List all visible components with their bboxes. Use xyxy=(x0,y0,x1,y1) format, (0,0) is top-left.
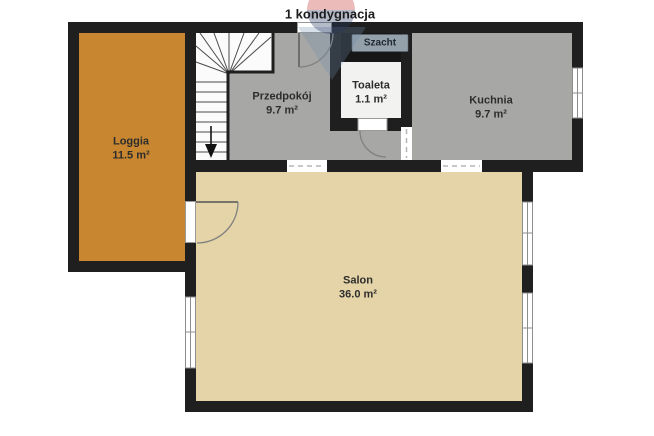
room-name: Salon xyxy=(339,274,377,288)
wall-segment xyxy=(68,22,196,33)
room-area: 9.7 m² xyxy=(252,104,311,118)
window-kuchnia xyxy=(573,68,583,118)
window-salon-right-lower xyxy=(523,293,533,363)
wall-segment xyxy=(330,118,358,131)
room-label-salon: Salon 36.0 m² xyxy=(339,274,377,303)
wall-segment xyxy=(572,22,583,68)
room-name: Kuchnia xyxy=(469,94,512,108)
wall-segment xyxy=(185,22,196,201)
wall-segment xyxy=(522,265,533,293)
wall-segment xyxy=(68,22,79,272)
room-label-loggia: Loggia 11.5 m² xyxy=(112,135,149,164)
floor-title: 1 kondygnacja xyxy=(285,7,375,22)
window-salon-left xyxy=(186,297,196,368)
room-area: 11.5 m² xyxy=(112,149,149,163)
floor-plan-page: 1 kondygnacja Szacht Loggia 11.5 m² Prze… xyxy=(0,0,654,436)
room-area: 1.1 m² xyxy=(352,93,390,107)
room-name: Toaleta xyxy=(352,79,390,93)
room-area: 36.0 m² xyxy=(339,288,377,302)
shaft-label: Szacht xyxy=(364,38,396,49)
wall-segment xyxy=(332,22,583,33)
wall-segment xyxy=(68,261,196,272)
room-name: Przedpokój xyxy=(252,90,311,104)
window-salon-right-upper xyxy=(523,202,533,265)
room-name: Loggia xyxy=(112,135,149,149)
wall-segment xyxy=(185,401,533,412)
room-label-toaleta: Toaleta 1.1 m² xyxy=(352,79,390,108)
wall-segment xyxy=(185,243,196,297)
wall-segment xyxy=(185,22,297,33)
wall-segment xyxy=(185,160,287,172)
floor-plan-drawing xyxy=(0,0,654,436)
wall-segment xyxy=(522,160,533,202)
room-label-przedpokoj: Przedpokój 9.7 m² xyxy=(252,90,311,119)
room-label-kuchnia: Kuchnia 9.7 m² xyxy=(469,94,512,123)
room-area: 9.7 m² xyxy=(469,108,512,122)
wall-segment xyxy=(327,160,441,172)
